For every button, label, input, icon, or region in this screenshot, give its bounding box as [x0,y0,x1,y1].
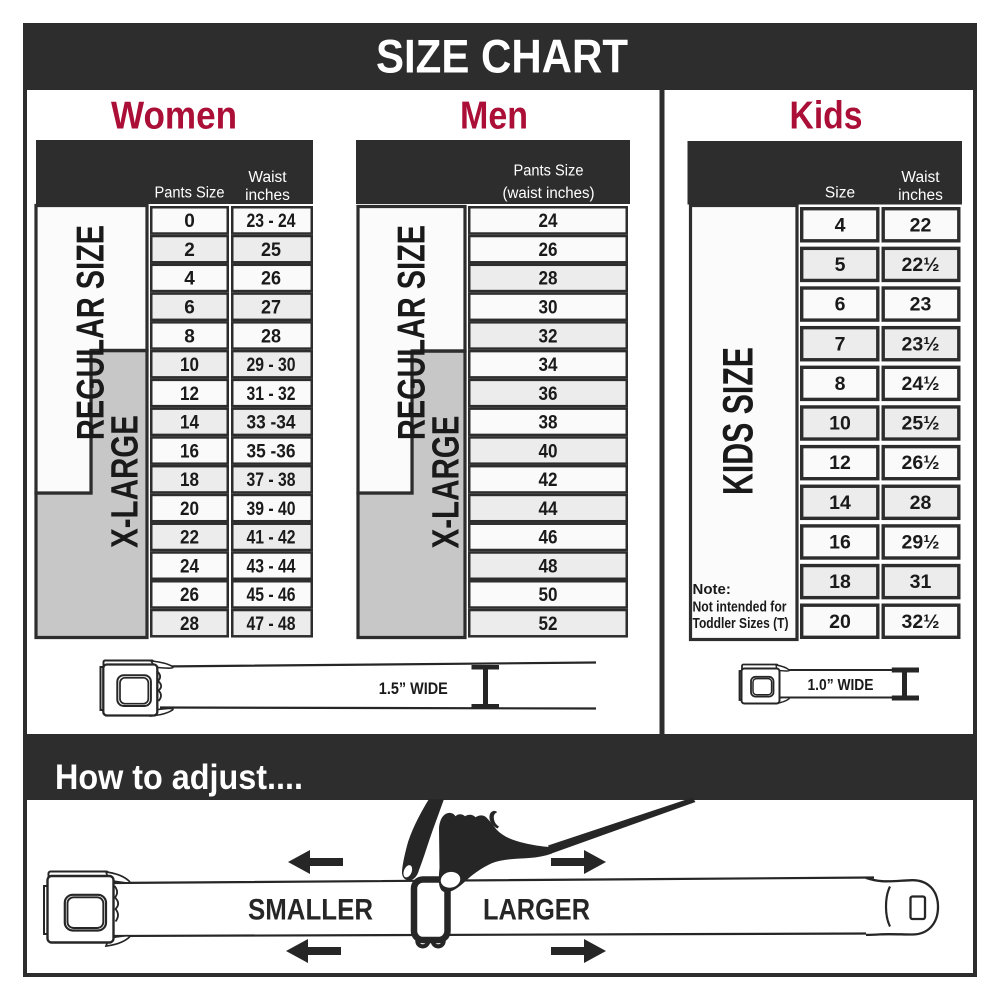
svg-text:47 - 48: 47 - 48 [247,614,296,635]
svg-text:42: 42 [539,470,558,491]
svg-text:18: 18 [829,571,851,593]
svg-text:X-LARGE: X-LARGE [426,416,468,549]
svg-text:37 - 38: 37 - 38 [247,470,296,491]
svg-text:12: 12 [180,384,199,405]
svg-text:30: 30 [539,298,558,319]
svg-text:20: 20 [180,499,199,520]
svg-text:29 - 30: 29 - 30 [247,355,296,376]
svg-text:inches: inches [898,187,943,204]
svg-text:23: 23 [910,294,932,316]
svg-text:Pants Size: Pants Size [155,185,225,202]
svg-text:43 - 44: 43 - 44 [247,556,296,577]
svg-text:28: 28 [261,326,281,347]
svg-text:24: 24 [180,556,199,577]
svg-text:24½: 24½ [902,373,940,395]
svg-text:28: 28 [539,269,558,290]
svg-text:48: 48 [539,556,558,577]
svg-text:16: 16 [829,532,851,554]
svg-text:X-LARGE: X-LARGE [105,415,147,548]
svg-text:18: 18 [180,470,199,491]
svg-text:24: 24 [539,211,558,232]
svg-text:10: 10 [180,355,199,376]
svg-text:Women: Women [111,95,237,138]
svg-text:22: 22 [180,528,199,549]
svg-text:39 - 40: 39 - 40 [247,499,296,520]
svg-text:Not intended for: Not intended for [693,599,787,616]
svg-text:SIZE CHART: SIZE CHART [376,30,628,83]
svg-text:25: 25 [261,240,281,261]
svg-text:Waist: Waist [248,169,287,186]
svg-text:6: 6 [184,298,195,319]
svg-text:Pants Size: Pants Size [514,163,584,180]
svg-text:38: 38 [539,413,558,434]
svg-text:REGULAR SIZE: REGULAR SIZE [70,225,113,440]
svg-text:4: 4 [835,214,846,236]
svg-text:22½: 22½ [902,254,940,276]
svg-text:14: 14 [180,413,199,434]
svg-text:0: 0 [184,211,195,232]
svg-text:1.5” WIDE: 1.5” WIDE [379,680,448,698]
svg-text:inches: inches [245,187,290,204]
svg-text:40: 40 [539,441,558,462]
svg-text:How to adjust....: How to adjust.... [55,758,303,797]
svg-text:52: 52 [539,614,558,635]
svg-text:(waist inches): (waist inches) [503,185,595,202]
svg-text:26: 26 [261,269,281,290]
svg-text:32½: 32½ [902,611,940,633]
svg-text:44: 44 [539,499,558,520]
svg-text:8: 8 [835,373,846,395]
svg-text:23½: 23½ [902,333,940,355]
svg-text:26: 26 [180,585,199,606]
svg-text:34: 34 [539,355,558,376]
svg-text:46: 46 [539,528,558,549]
svg-text:SMALLER: SMALLER [248,894,373,927]
svg-text:Note:: Note: [693,581,731,598]
svg-text:Kids: Kids [790,95,863,138]
svg-text:6: 6 [835,294,846,316]
svg-text:LARGER: LARGER [483,894,590,927]
svg-text:31 - 32: 31 - 32 [247,384,296,405]
svg-text:5: 5 [835,254,846,276]
svg-text:33 -34: 33 -34 [247,413,296,434]
svg-text:45 - 46: 45 - 46 [247,585,296,606]
svg-text:41 - 42: 41 - 42 [247,528,296,549]
svg-text:23 - 24: 23 - 24 [247,211,296,232]
svg-text:1.0” WIDE: 1.0” WIDE [808,677,874,694]
svg-text:8: 8 [184,326,195,347]
svg-text:32: 32 [539,326,558,347]
svg-text:35 -36: 35 -36 [247,441,296,462]
svg-text:25½: 25½ [902,413,940,435]
svg-text:36: 36 [539,384,558,405]
svg-text:Waist: Waist [901,169,940,186]
svg-text:28: 28 [180,614,199,635]
svg-text:10: 10 [829,413,851,435]
svg-text:22: 22 [910,214,932,236]
svg-text:28: 28 [910,492,932,514]
svg-text:26: 26 [539,240,558,261]
svg-text:4: 4 [184,269,195,290]
svg-text:16: 16 [180,441,199,462]
svg-text:7: 7 [835,333,846,355]
svg-text:31: 31 [910,571,932,593]
svg-text:Toddler Sizes (T): Toddler Sizes (T) [693,615,789,632]
svg-text:Size: Size [825,185,855,202]
svg-text:26½: 26½ [902,452,940,474]
svg-text:29½: 29½ [902,532,940,554]
svg-text:27: 27 [261,298,281,319]
svg-text:14: 14 [829,492,851,514]
svg-text:20: 20 [829,611,851,633]
svg-text:50: 50 [539,585,558,606]
svg-text:Men: Men [460,95,528,138]
svg-text:KIDS SIZE: KIDS SIZE [715,347,763,495]
svg-text:12: 12 [829,452,851,474]
svg-text:REGULAR SIZE: REGULAR SIZE [391,225,434,440]
svg-text:2: 2 [184,240,195,261]
